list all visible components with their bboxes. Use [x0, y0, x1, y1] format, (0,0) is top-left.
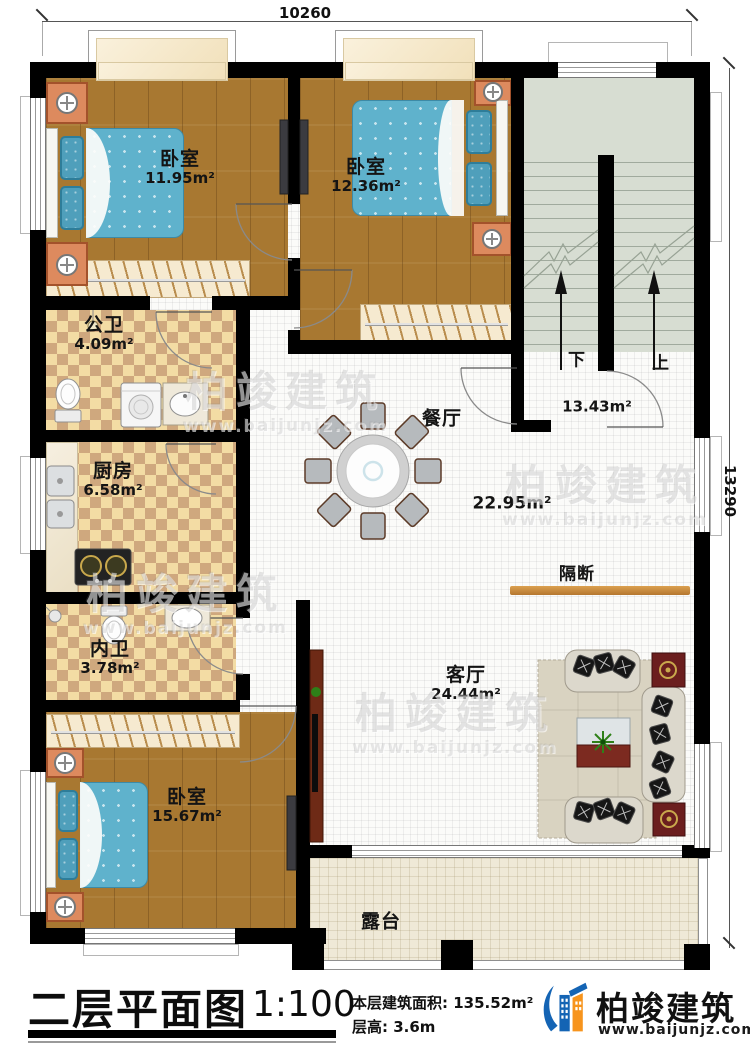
kitchen-sink: [47, 466, 74, 528]
stair-break-lines: [524, 226, 694, 288]
room-label-inner-bath: 内卫 3.78m²: [80, 639, 139, 677]
room-name: 卧室: [145, 149, 215, 170]
room-name: 卧室: [331, 157, 401, 178]
room-area: 6.58m²: [83, 482, 142, 499]
partition-label: 隔断: [559, 565, 595, 584]
room-area: 4.09m²: [74, 336, 133, 353]
stairs-area-label: 13.43m²: [562, 399, 632, 416]
room-name: 内卫: [80, 639, 139, 660]
room-name: 厨房: [83, 461, 142, 482]
room-label-public-bath: 公卫 4.09m²: [74, 315, 133, 353]
dining-table-set: [305, 403, 441, 539]
room-area: 12.36m²: [331, 178, 401, 195]
room-name: 餐厅: [422, 408, 462, 429]
plan-title: 二层平面图: [28, 976, 248, 1037]
kitchen-stove: [75, 549, 131, 585]
tv-bedroom1: [280, 120, 288, 194]
stairs-up-text: 上: [652, 354, 670, 373]
room-label-bedroom3: 卧室 15.67m²: [152, 787, 222, 825]
room-name: 卧室: [152, 787, 222, 808]
room-area: 11.95m²: [145, 170, 215, 187]
room-area: 3.78m²: [80, 660, 139, 677]
room-name: 露台: [361, 911, 401, 932]
room-area: 24.44m²: [431, 686, 501, 703]
tv-bedroom2: [300, 120, 308, 194]
room-area: 15.67m²: [152, 808, 222, 825]
room-label-dining: 餐厅: [422, 408, 462, 429]
stairs-up-label: 上: [652, 354, 670, 373]
stairs-down-label: 下: [568, 351, 586, 370]
room-label-bedroom2: 卧室 12.36m²: [331, 157, 401, 195]
stairs-down-text: 下: [568, 351, 586, 370]
room-label-kitchen: 厨房 6.58m²: [83, 461, 142, 499]
title-underline: [28, 1030, 336, 1038]
room-area-dining: 22.95m²: [473, 494, 552, 513]
room-name: 客厅: [431, 665, 501, 686]
room-area: 22.95m²: [473, 494, 552, 513]
tv-console-living: [310, 650, 323, 842]
room-label-living: 客厅 24.44m²: [431, 665, 501, 703]
room-name: 隔断: [559, 565, 595, 584]
room-name: 公卫: [74, 315, 133, 336]
floor-area-text: 本层建筑面积: 135.52m²: [352, 992, 533, 1013]
sofa-set: [538, 650, 685, 843]
tv-bedroom3: [287, 796, 296, 870]
plan-scale: 1:100: [252, 984, 356, 1025]
brand-website: www.baijunjz.com: [598, 1022, 750, 1038]
title-underline-thin: [28, 1041, 336, 1043]
floor-height-text: 层高: 3.6m: [352, 1016, 435, 1037]
room-label-bedroom1: 卧室 11.95m²: [145, 149, 215, 187]
floor-plan-page: 卧室 11.95m² 卧室 12.36m² 公卫 4.09m² 厨房 6.58m…: [0, 0, 750, 1046]
terrace-label: 露台: [361, 911, 401, 932]
brand-logo-icon: [538, 978, 594, 1038]
brand-logo-block: 柏竣建筑 www.baijunjz.com: [538, 978, 750, 1042]
room-area: 13.43m²: [562, 399, 632, 416]
